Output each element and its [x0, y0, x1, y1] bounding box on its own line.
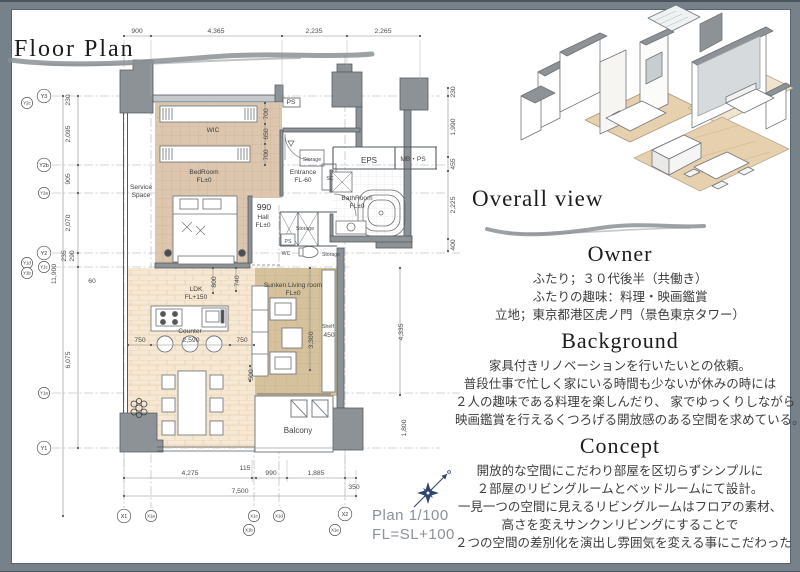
- dim-tick: [399, 267, 401, 269]
- column-bottom-left: [120, 413, 163, 452]
- owner-line: 立地；東京都港区虎ノ門（景色東京タワー）: [455, 306, 785, 324]
- dim-label: 2,225: [450, 196, 457, 213]
- owner-line: ふたりの趣味：料理・映画鑑賞: [455, 288, 785, 306]
- dim-tick: [77, 192, 79, 194]
- dim-tick: [150, 344, 152, 346]
- dining-table: [162, 371, 223, 435]
- column-top-mid: [332, 72, 362, 107]
- dim-tick: [286, 477, 288, 479]
- dim-tick: [123, 495, 125, 497]
- dim-label: 990: [257, 202, 271, 212]
- room-label: Storage: [303, 157, 321, 163]
- dim-tick: [264, 102, 266, 104]
- concept-section: Concept 開放的な空間にこだわり部屋を区切らずシンプルに ２部屋のリビング…: [455, 433, 785, 552]
- concept-line: 一見一つの空間に見えるリビングルームはフロアの素材、: [455, 498, 785, 516]
- room-label: Sunken Living room: [264, 282, 323, 289]
- dim-label: 2,070: [65, 214, 72, 231]
- room-label: FL-60: [294, 177, 312, 184]
- grid-bubble-label: Y2: [41, 251, 48, 257]
- dim-label: 990: [265, 470, 277, 477]
- page-title: Floor Plan: [14, 36, 135, 63]
- concept-line: 高さを変えサンクンリビングにすることで: [455, 516, 785, 534]
- grid-bubble-label: Y1d: [23, 261, 31, 266]
- room-label: BedRoom: [189, 169, 219, 176]
- room-label: PS: [287, 99, 296, 106]
- dim-tick: [62, 515, 64, 517]
- room-label: FL±0: [286, 290, 301, 297]
- owner-heading: Owner: [455, 241, 785, 267]
- background-line: 家具付きリノベーションを行いたいとの依頼。: [455, 357, 785, 375]
- grid-bubble-label: X1e: [331, 528, 339, 533]
- shelf: [322, 270, 335, 392]
- room-label: WC: [282, 251, 291, 257]
- room-label: BathRoom: [341, 195, 373, 202]
- dim-tick: [447, 170, 449, 172]
- dim-tick: [447, 156, 449, 158]
- room-label: Shelf: [322, 324, 334, 330]
- column-bottom-right: [330, 408, 363, 450]
- room-label: Hall: [257, 214, 269, 221]
- room-label: FL±0: [197, 177, 212, 184]
- grid-bubble-label: X1c: [250, 514, 258, 519]
- concept-line: ２つの空間の差別化を演出し雰囲気を変える事にこだわった: [455, 534, 785, 552]
- grid-bubble-label: X1a: [147, 514, 155, 519]
- dim-label: 2,095: [65, 125, 72, 142]
- dim-label: 4,365: [207, 28, 224, 35]
- dim-label: 3,300: [308, 331, 315, 348]
- dim-tick: [419, 35, 421, 37]
- dim-label: 7,500: [231, 488, 248, 495]
- dim-label: 2,235: [305, 28, 322, 35]
- dim-tick: [62, 95, 64, 97]
- dim-tick: [309, 267, 311, 269]
- room-label: SC: [326, 176, 333, 182]
- compass-icon: [414, 471, 450, 507]
- grid-bubble-label: X1d: [275, 514, 283, 519]
- background-line: 映画鑑賞を行えるくつろげる開放感のある空間を求めている。: [455, 411, 785, 429]
- room-label: FL±0: [256, 222, 271, 229]
- dim-tick: [264, 143, 266, 145]
- column-top-left: [120, 60, 153, 113]
- dim-label: 290: [69, 250, 76, 262]
- dim-label: 740: [234, 275, 241, 287]
- concept-heading: Concept: [455, 433, 785, 459]
- dim-label: 2,265: [374, 28, 391, 35]
- dim-label: 750: [236, 337, 248, 344]
- info-panel: Owner ふたり；３０代後半（共働き） ふたりの趣味：料理・映画鑑賞 立地；東…: [455, 237, 785, 552]
- dim-tick: [346, 35, 348, 37]
- room-label: MB・PS: [400, 156, 426, 163]
- dim-label: 4,335: [398, 323, 405, 340]
- grid-bubble-label: Y2a: [40, 191, 48, 196]
- dim-label: 60: [88, 278, 96, 285]
- background-line: 普段仕事で忙しく家にいる時間も少ないが休みの時には: [455, 375, 785, 393]
- grid-bubble-label: Y1c: [40, 265, 48, 270]
- dim-tick: [447, 238, 449, 240]
- room-label: PS: [285, 239, 292, 245]
- dim-tick: [249, 365, 251, 367]
- dim-tick: [447, 250, 449, 252]
- room-label: Service: [130, 184, 152, 191]
- dim-tick: [447, 95, 449, 97]
- dim-tick: [77, 164, 79, 166]
- room-label: Space: [132, 192, 151, 199]
- grid-bubble-label: Y3: [41, 94, 48, 100]
- dim-tick: [264, 164, 266, 166]
- owner-section: Owner ふたり；３０代後半（共働き） ふたりの趣味：料理・映画鑑賞 立地；東…: [455, 241, 785, 324]
- grid-bubble-label: X2: [342, 512, 349, 518]
- dim-tick: [447, 87, 449, 89]
- grid-bubble-label: Y1: [41, 446, 48, 452]
- dim-tick: [309, 369, 311, 371]
- balcony: [255, 396, 333, 452]
- dim-tick: [251, 477, 253, 479]
- fl-label: FL=SL+100: [372, 525, 455, 544]
- grid-bubble-label: Y2b: [39, 163, 49, 169]
- dim-tick: [127, 344, 129, 346]
- overall-view-illustration: [521, 5, 793, 191]
- room-label: FL±0: [350, 203, 365, 210]
- room-label: Entrance: [290, 169, 317, 176]
- level-marker: [288, 141, 294, 146]
- room-label: Storage: [296, 226, 314, 232]
- dim-tick: [150, 35, 152, 37]
- dim-label: 800: [211, 276, 218, 288]
- dim-label: 905: [65, 173, 72, 185]
- room-label: FL+150: [185, 294, 208, 301]
- dim-tick: [355, 495, 357, 497]
- grid-bubble-label: Y1b: [23, 271, 31, 276]
- dim-label: 115: [240, 465, 251, 472]
- dim-label: 500: [248, 369, 255, 381]
- concept-line: 開放的な空間にこだわり部屋を区切らずシンプルに: [455, 462, 785, 480]
- dim-label: 11,900: [51, 264, 58, 285]
- overall-view-title: Overall view: [472, 186, 603, 212]
- room-label: WIC: [207, 127, 220, 134]
- dim-label: 230: [450, 86, 457, 98]
- dim-label: 235: [61, 250, 68, 262]
- dim-tick: [355, 477, 357, 479]
- dim-label: 455: [450, 158, 457, 170]
- room-label: Counter: [178, 328, 202, 335]
- grid-bubble-label: Y2c: [23, 101, 31, 106]
- dim-tick: [77, 266, 79, 268]
- dim-tick: [235, 290, 237, 292]
- room-label: LDK: [190, 286, 203, 293]
- dim-tick: [77, 447, 79, 449]
- dim-tick: [77, 95, 79, 97]
- dim-label: 1,800: [401, 419, 408, 436]
- column-top-right: [400, 78, 428, 110]
- dim-tick: [235, 267, 237, 269]
- dim-label: 4,275: [181, 470, 198, 477]
- dim-label: 450: [323, 332, 335, 339]
- bed: [165, 196, 246, 264]
- dim-label: 230: [65, 94, 72, 106]
- grid-bubble-label: Y1a: [40, 391, 48, 396]
- dim-tick: [255, 477, 257, 479]
- dim-label: 1,990: [450, 118, 457, 135]
- room-label: EPS: [361, 156, 377, 165]
- dim-label: 700: [263, 108, 270, 120]
- presentation-board: Y3Y2cY2bY2aY2Y1dY1cY1bY1aY1X1X1aX1cX1bX1…: [0, 0, 800, 572]
- background-section: Background 家具付きリノベーションを行いたいとの依頼。 普段仕事で忙し…: [455, 328, 785, 429]
- room-label: Storage: [322, 252, 340, 258]
- dim-tick: [264, 123, 266, 125]
- plan-scale-block: Plan 1/100 FL=SL+100: [372, 506, 455, 544]
- dim-label: 700: [263, 149, 270, 161]
- dim-tick: [281, 35, 283, 37]
- owner-line: ふたり；３０代後半（共働き）: [455, 270, 785, 288]
- dim-tick: [212, 292, 214, 294]
- concept-line: ２部屋のリビングルームとベッドルームにて設計。: [455, 480, 785, 498]
- dim-tick: [253, 344, 255, 346]
- dim-label: 2,590: [182, 337, 199, 344]
- dim-label: 750: [134, 337, 146, 344]
- dim-tick: [399, 394, 401, 396]
- background-line: ２人の趣味である料理を楽しんだり、 家でゆっくりしながら: [455, 393, 785, 411]
- plan-scale-label: Plan 1/100: [372, 506, 455, 525]
- background-heading: Background: [455, 328, 785, 354]
- dim-label: 1,885: [307, 470, 324, 477]
- grid-bubble-label: X1: [121, 514, 128, 520]
- dim-tick: [229, 344, 231, 346]
- dim-label: 650: [263, 128, 270, 140]
- room-label: Balcony: [284, 426, 312, 435]
- dim-tick: [344, 477, 346, 479]
- dim-tick: [123, 477, 125, 479]
- dim-label: 900: [131, 28, 143, 35]
- dim-tick: [77, 252, 79, 254]
- grid-bubble-label: X1b: [245, 528, 253, 533]
- dim-label: 6,075: [65, 351, 72, 368]
- dim-label: 350: [348, 484, 360, 491]
- dim-tick: [212, 267, 214, 269]
